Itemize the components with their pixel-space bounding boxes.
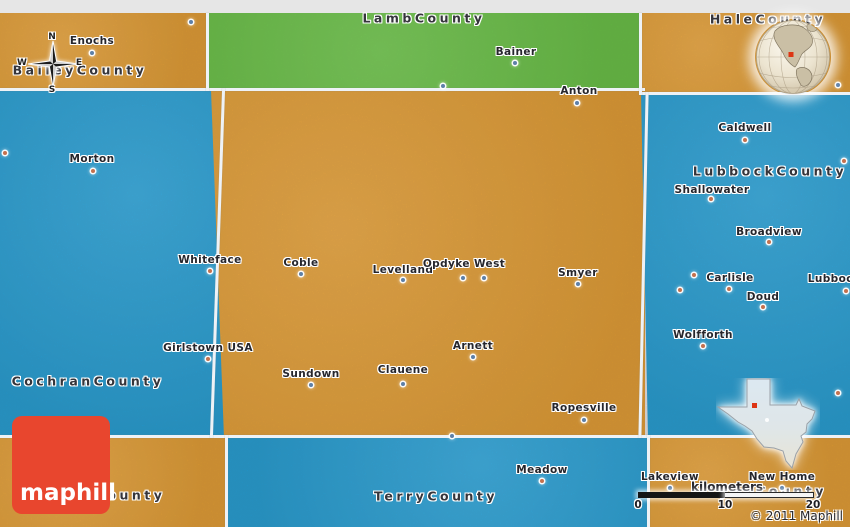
- town-dot-whiteface: [208, 269, 212, 273]
- county-label-lambcounty: LambCounty: [362, 11, 485, 26]
- town-dot-anton: [575, 101, 579, 105]
- town-label-coble: Coble: [283, 257, 318, 269]
- border-line: [639, 13, 642, 95]
- town-dot-coble: [299, 272, 303, 276]
- map-canvas[interactable]: BaileyCountyLambCountyHaleCountyCochranC…: [0, 0, 850, 527]
- scale-bar: kilometers 0 10 20: [628, 478, 828, 512]
- town-dot-wolfforth: [701, 344, 705, 348]
- border-line: [206, 13, 209, 91]
- town-dot-arnett: [471, 355, 475, 359]
- town-dot: [482, 276, 486, 280]
- border-line: [0, 435, 850, 438]
- town-dot-enochs: [90, 51, 94, 55]
- town-dot-smyer: [576, 282, 580, 286]
- town-label-smyer: Smyer: [558, 267, 598, 279]
- compass-south-label: S: [49, 85, 55, 95]
- town-dot-doud: [761, 305, 765, 309]
- compass-west-label: W: [17, 58, 27, 68]
- maphill-logo[interactable]: maphill: [12, 416, 110, 514]
- compass-east-label: E: [76, 58, 82, 68]
- town-dot-sundown: [309, 383, 313, 387]
- maphill-logo-text: maphill: [20, 480, 116, 506]
- town-dot-lubbock: [844, 289, 848, 293]
- region-lubbock-county: [636, 93, 850, 438]
- town-label-girlstown-usa: Girlstown USA: [163, 342, 253, 354]
- town-label-morton: Morton: [70, 153, 115, 165]
- town-label-broadview: Broadview: [736, 226, 802, 238]
- town-label-whiteface: Whiteface: [178, 254, 241, 266]
- town-label-carlisle: Carlisle: [706, 272, 753, 284]
- town-label-doud: Doud: [747, 291, 780, 303]
- town-label-ropesville: Ropesville: [552, 402, 617, 414]
- town-dot-bainer: [513, 61, 517, 65]
- compass-rose: [27, 40, 79, 88]
- border-line: [0, 88, 645, 91]
- scale-bar-segment-empty: [725, 492, 814, 498]
- town-dot-girlstown-usa: [206, 357, 210, 361]
- town-dot-levelland: [401, 278, 405, 282]
- town-dot-ropesville: [582, 418, 586, 422]
- town-dot: [678, 288, 682, 292]
- scale-tick-0: 0: [634, 499, 641, 511]
- town-label-meadow: Meadow: [516, 464, 568, 476]
- border-line: [225, 435, 228, 527]
- county-label-terrycounty: TerryCounty: [374, 489, 498, 504]
- town-dot: [450, 434, 454, 438]
- region-terry-county: [226, 436, 650, 527]
- town-dot: [692, 273, 696, 277]
- town-label-opdyke-west: Opdyke West: [423, 258, 505, 270]
- town-label-clauene: Clauene: [378, 364, 428, 376]
- town-dot-opdyke-west: [461, 276, 465, 280]
- town-label-shallowater: Shallowater: [674, 184, 749, 196]
- town-dot: [441, 84, 445, 88]
- town-dot-broadview: [767, 240, 771, 244]
- compass-north-label: N: [48, 32, 56, 42]
- town-dot-meadow: [540, 479, 544, 483]
- county-label-lubbockcounty: LubbockCounty: [693, 164, 847, 179]
- town-label-bainer: Bainer: [496, 46, 537, 58]
- town-dot-clauene: [401, 382, 405, 386]
- scale-tick-10: 10: [718, 499, 733, 511]
- town-dot-shallowater: [709, 197, 713, 201]
- town-label-wolfforth: Wolfforth: [673, 329, 733, 341]
- globe-locator-inset: [755, 19, 831, 95]
- town-label-caldwell: Caldwell: [718, 122, 771, 134]
- copyright-text: © 2011 Maphill: [750, 509, 843, 523]
- town-dot-caldwell: [743, 138, 747, 142]
- town-label-arnett: Arnett: [453, 340, 493, 352]
- town-dot: [189, 20, 193, 24]
- town-dot: [3, 151, 7, 155]
- town-label-sundown: Sundown: [282, 368, 339, 380]
- town-dot: [836, 83, 840, 87]
- scale-bar-segment-filled: [638, 492, 727, 498]
- town-dot: [842, 159, 846, 163]
- town-dot-morton: [91, 169, 95, 173]
- town-dot: [836, 391, 840, 395]
- town-label-lubbock: Lubbock: [808, 273, 850, 285]
- county-label-cochrancounty: CochranCounty: [12, 374, 165, 389]
- town-dot-carlisle: [727, 287, 731, 291]
- globe-location-marker: [789, 52, 794, 57]
- town-label-anton: Anton: [560, 85, 597, 97]
